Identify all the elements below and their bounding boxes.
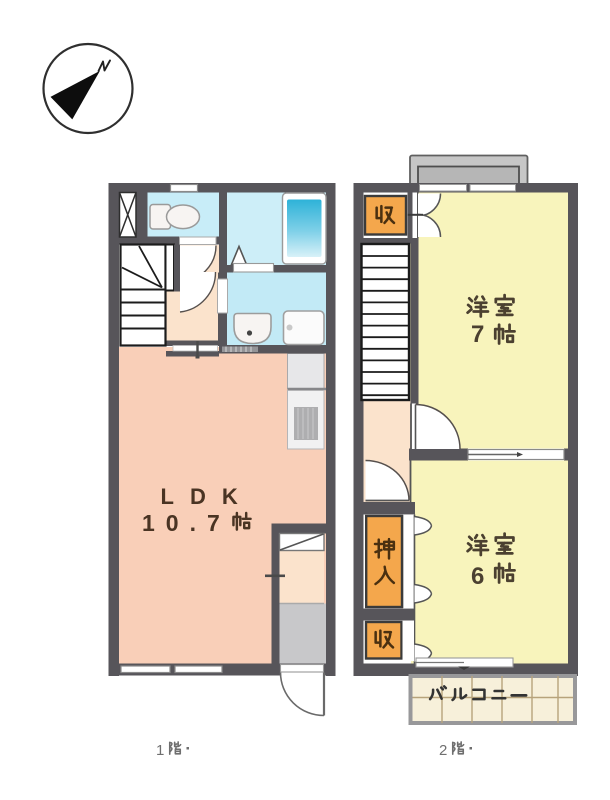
svg-text:LDK: LDK xyxy=(161,484,254,509)
svg-text:1: 1 xyxy=(156,742,164,759)
svg-text:2: 2 xyxy=(439,742,447,759)
svg-text:6: 6 xyxy=(471,563,484,590)
svg-text:10.7: 10.7 xyxy=(142,510,231,536)
svg-text:7: 7 xyxy=(471,321,484,348)
